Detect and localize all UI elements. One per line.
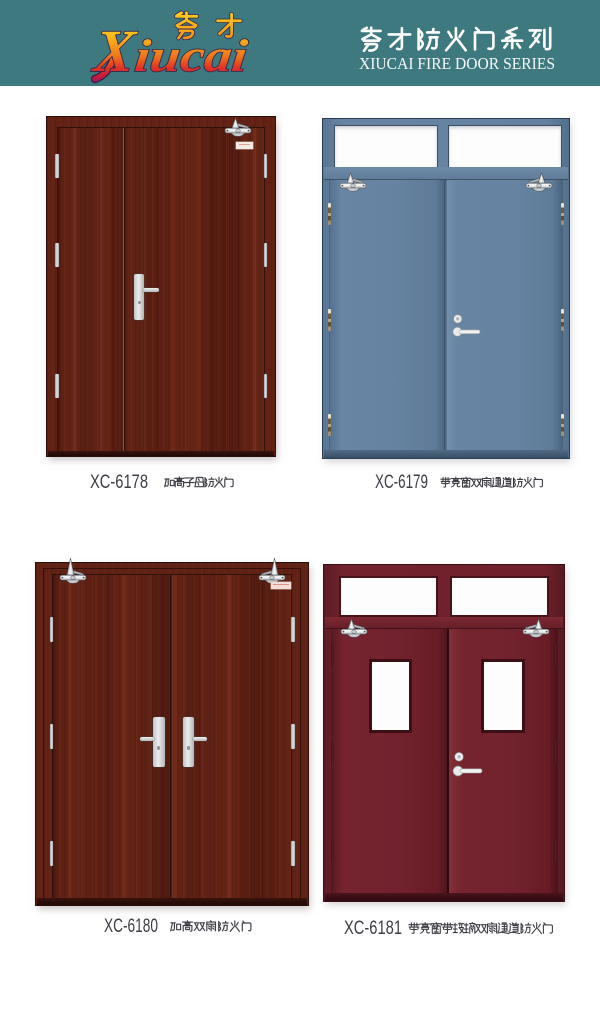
svg-text:XC-6180: XC-6180 — [104, 916, 158, 937]
svg-text:XC-6181: XC-6181 — [344, 918, 402, 939]
svg-text:XC-6179: XC-6179 — [375, 472, 428, 493]
svg-text:XC-6178: XC-6178 — [90, 472, 148, 493]
svg-text:XIUCAI FIRE DOOR SERIES: XIUCAI FIRE DOOR SERIES — [359, 54, 555, 73]
